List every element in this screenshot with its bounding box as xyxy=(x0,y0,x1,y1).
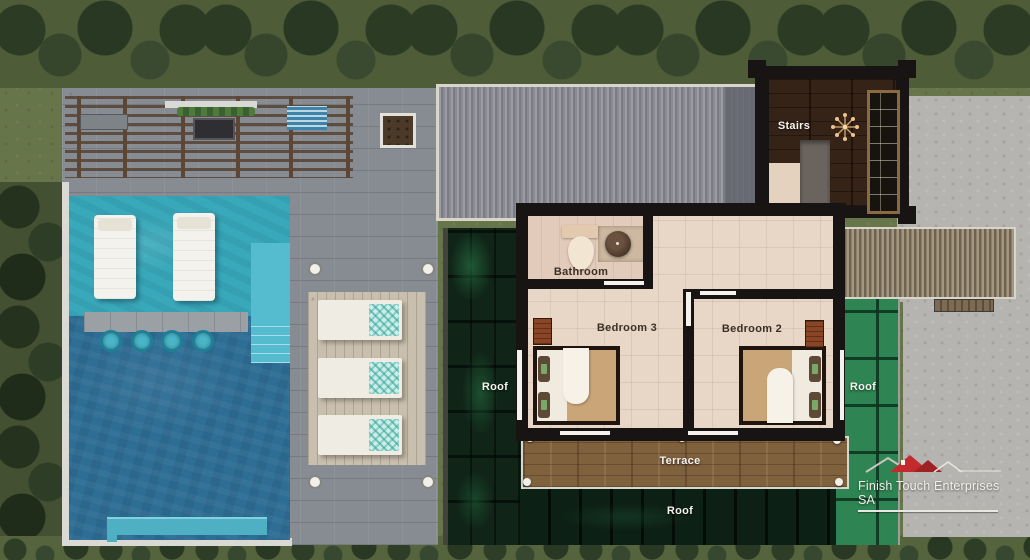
sun-lounger xyxy=(173,213,215,301)
logo-house-icon xyxy=(858,450,1003,476)
bathroom-label: Bathroom xyxy=(531,266,631,278)
terrace-post xyxy=(523,478,531,486)
wall-bathroom-east xyxy=(643,203,653,289)
company-logo: Finish Touch Enterprises SA xyxy=(858,450,1003,512)
deck-light xyxy=(421,262,435,276)
bathroom-door xyxy=(604,281,644,285)
wall-pillar xyxy=(748,60,766,78)
bed-bedroom3 xyxy=(533,346,620,425)
pillow xyxy=(538,356,550,382)
daybed-cushion xyxy=(369,304,399,336)
terrace-label: Terrace xyxy=(620,455,740,467)
throw-blanket xyxy=(767,368,793,423)
pool-stool xyxy=(100,330,122,352)
pergola xyxy=(65,96,353,178)
daybed xyxy=(318,300,402,340)
tree-band-left xyxy=(0,182,64,560)
roof-label-bottom: Roof xyxy=(640,505,720,517)
bedroom3-label: Bedroom 3 xyxy=(568,322,686,334)
deck-light xyxy=(308,475,322,489)
pergola-post xyxy=(346,96,350,178)
fire-pit xyxy=(380,113,416,148)
pergola-post xyxy=(123,96,127,178)
outdoor-bench xyxy=(287,106,327,130)
slat-canopy xyxy=(840,227,1016,299)
terrace-post xyxy=(835,478,843,486)
roof-label-right: Roof xyxy=(823,381,903,393)
pillow xyxy=(809,392,821,418)
villa-floor-plan-render: Stairs Bathroom Bedroom 3 Bedroom 2 Terr… xyxy=(0,0,1030,560)
pool-bench xyxy=(107,517,267,535)
pool-walkway xyxy=(84,312,248,332)
chandelier-icon xyxy=(828,110,862,144)
pool-stool xyxy=(192,330,214,352)
stairs-label: Stairs xyxy=(763,120,825,132)
daybed-cushion xyxy=(369,362,399,394)
pool-step-lines xyxy=(251,325,290,363)
yard-bench xyxy=(934,299,994,312)
stairs-window xyxy=(867,90,900,214)
bed-bedroom2 xyxy=(739,346,826,425)
daybed-cushion xyxy=(369,419,399,451)
pillow xyxy=(809,356,821,382)
wall-pillar xyxy=(898,206,916,224)
bbq-grill xyxy=(193,118,235,140)
deck-light xyxy=(421,475,435,489)
pool-coping-left xyxy=(62,182,69,546)
outdoor-counter xyxy=(80,114,128,130)
terrace-slider-door xyxy=(688,431,738,435)
throw-blanket xyxy=(563,348,589,404)
dresser xyxy=(533,318,552,345)
planter-plants xyxy=(177,107,255,116)
logo-underline xyxy=(858,510,998,512)
roof-label-left: Roof xyxy=(455,381,535,393)
pergola-post xyxy=(77,96,81,178)
pool-steps xyxy=(251,243,290,363)
bedroom2-label: Bedroom 2 xyxy=(693,323,811,335)
pool-stool xyxy=(131,330,153,352)
sun-lounger xyxy=(94,215,136,299)
logo-text: Finish Touch Enterprises SA xyxy=(858,479,1003,507)
wall-pillar xyxy=(898,60,916,78)
stair-flight xyxy=(800,140,830,206)
pillow xyxy=(538,392,550,418)
corrugated-roof xyxy=(436,84,766,221)
bedroom2-door xyxy=(700,291,736,295)
daybed xyxy=(318,415,402,455)
terrace-slider-door xyxy=(560,431,610,435)
daybed xyxy=(318,358,402,398)
deck-light xyxy=(308,262,322,276)
bedroom3-door xyxy=(686,292,691,326)
pool-stool xyxy=(161,330,183,352)
wall-top xyxy=(516,203,846,216)
bathroom-sink xyxy=(605,231,631,257)
